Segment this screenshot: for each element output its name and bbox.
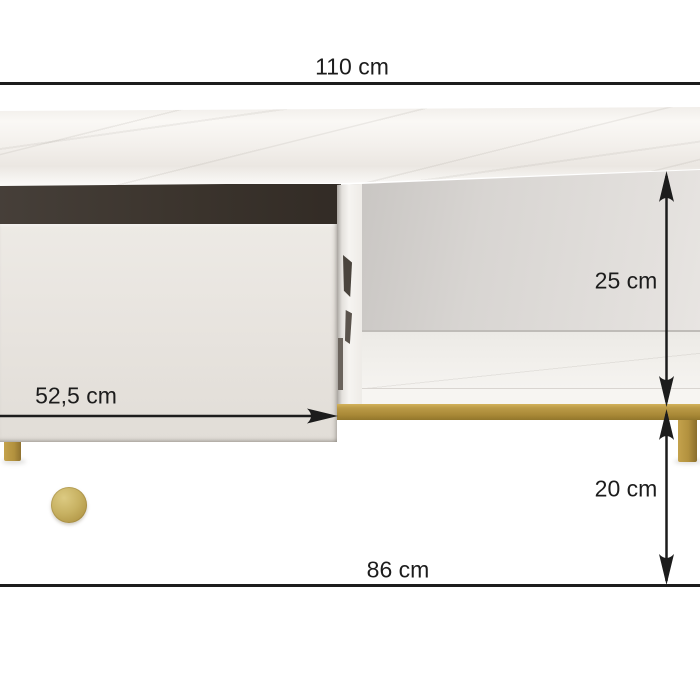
dimension-label-top-width: 110 cm	[315, 56, 389, 79]
marble-shelf-surface	[357, 332, 700, 388]
dimension-label-leg-height: 20 cm	[595, 478, 658, 501]
arrowhead-down-icon	[659, 554, 674, 585]
gold-round-knob	[51, 487, 87, 523]
drawer-runner-hardware	[345, 310, 352, 344]
front-right-gold-leg	[678, 420, 697, 462]
dimension-label-bottom-width: 86 cm	[367, 559, 430, 582]
gold-base-frame	[337, 404, 700, 420]
dimension-label-shelf-height: 25 cm	[595, 270, 658, 293]
drawer-runner-hardware	[343, 255, 352, 297]
open-drawer-cavity	[0, 184, 341, 224]
drawer-runner-hardware	[338, 338, 343, 390]
center-divider-panel	[337, 168, 362, 405]
front-left-gold-leg	[4, 442, 21, 461]
product-dimension-diagram: 110 cm 25 cm 52,5 cm 20 cm 86 cm	[0, 0, 700, 700]
shelf-front-edge	[337, 388, 700, 405]
open-drawer-front	[0, 224, 337, 442]
dimension-label-drawer-width: 52,5 cm	[35, 385, 117, 408]
